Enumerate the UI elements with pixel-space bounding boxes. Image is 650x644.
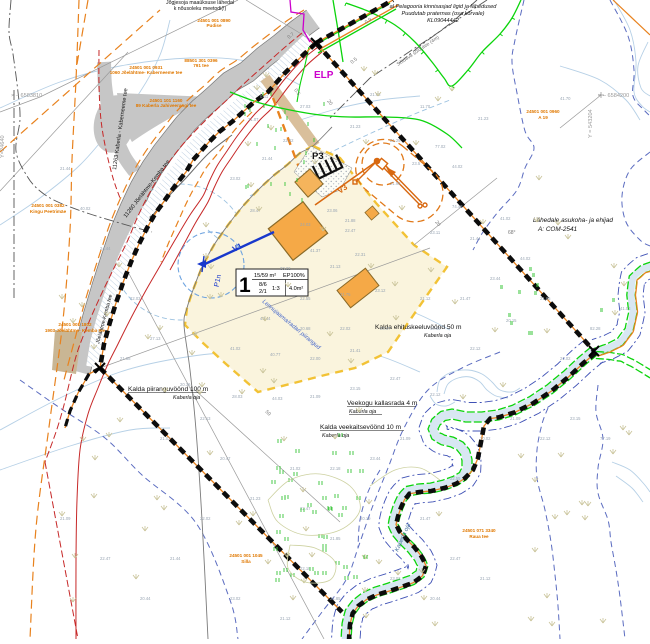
svg-text:20.02: 20.02 [480, 436, 491, 441]
svg-text:22.00: 22.00 [310, 356, 321, 361]
svg-text:21.02: 21.02 [290, 466, 301, 471]
svg-text:Puudutab praternas (osa kõrval: Puudutab praternas (osa kõrvale) [401, 11, 484, 17]
svg-text:11.70: 11.70 [420, 104, 431, 109]
svg-text:21.09: 21.09 [310, 394, 321, 399]
svg-text:22.47: 22.47 [390, 376, 401, 381]
svg-text:24501 001 0382: 24501 001 0382 [31, 203, 65, 208]
svg-text:23.44: 23.44 [370, 456, 381, 461]
svg-text:22.47: 22.47 [345, 228, 356, 233]
svg-text:20.44: 20.44 [430, 596, 441, 601]
svg-text:41.02: 41.02 [500, 216, 511, 221]
svg-text:23.12: 23.12 [375, 288, 386, 293]
svg-text:41.70: 41.70 [560, 96, 571, 101]
svg-text:21.02: 21.02 [160, 436, 171, 441]
svg-text:23.15: 23.15 [570, 416, 581, 421]
svg-text:Kaberla oja: Kaberla oja [424, 333, 451, 339]
svg-text:20.19: 20.19 [360, 516, 371, 521]
svg-text:15/59 m²: 15/59 m² [254, 273, 276, 279]
svg-text:20.36: 20.36 [180, 382, 191, 387]
svg-text:A: COM-2541: A: COM-2541 [537, 226, 578, 233]
svg-text:24501 001 1802: 24501 001 1802 [58, 322, 92, 327]
svg-text:21.88: 21.88 [345, 218, 356, 223]
svg-text:23.11: 23.11 [430, 230, 441, 235]
svg-text:23.37: 23.37 [380, 326, 391, 331]
svg-text:791 tee: 791 tee [193, 63, 209, 68]
svg-text:22.47: 22.47 [300, 506, 311, 511]
svg-text:41.03: 41.03 [620, 306, 631, 311]
svg-text:A 19: A 19 [538, 115, 548, 120]
svg-text:21.12: 21.12 [480, 576, 491, 581]
svg-text:22.18: 22.18 [300, 566, 311, 571]
svg-text:1060 Jõelähtme- Kaberneeme tee: 1060 Jõelähtme- Kaberneeme tee [110, 70, 183, 75]
svg-text:1903 Jõelähtme- Kemba tee: 1903 Jõelähtme- Kemba tee [45, 328, 106, 333]
svg-text:22.55: 22.55 [300, 296, 311, 301]
svg-text:21.23: 21.23 [478, 116, 489, 121]
svg-text:23.15: 23.15 [350, 386, 361, 391]
svg-text:KL09044442: KL09044442 [427, 18, 460, 24]
svg-text:21.09: 21.09 [510, 416, 521, 421]
svg-text:21.23: 21.23 [250, 496, 261, 501]
svg-text:21.44: 21.44 [262, 156, 273, 161]
svg-text:68°: 68° [508, 230, 516, 236]
svg-text:28.03: 28.03 [232, 394, 243, 399]
svg-text:23.44: 23.44 [490, 276, 501, 281]
svg-text:Silla: Silla [241, 559, 251, 564]
svg-text:22.47: 22.47 [450, 556, 461, 561]
svg-text:21.12: 21.12 [280, 616, 291, 621]
svg-text:24501 001 1045: 24501 001 1045 [229, 553, 263, 558]
svg-text:74.48: 74.48 [452, 204, 463, 209]
svg-text:20.68: 20.68 [300, 326, 311, 331]
svg-text:8/6: 8/6 [259, 282, 267, 288]
svg-text:77.19: 77.19 [600, 436, 611, 441]
svg-text:22.13: 22.13 [200, 416, 211, 421]
svg-text:40.02: 40.02 [80, 206, 91, 211]
svg-text:Raua tee: Raua tee [469, 534, 489, 539]
svg-text:21.41: 21.41 [350, 348, 361, 353]
svg-text:22.12: 22.12 [430, 392, 441, 397]
svg-text:21.85: 21.85 [330, 596, 341, 601]
svg-text:Kalda piiranguvöönd 100 m: Kalda piiranguvöönd 100 m [128, 386, 209, 393]
svg-text:21.13: 21.13 [330, 264, 341, 269]
svg-text:22.31: 22.31 [355, 252, 366, 257]
svg-text:22.02: 22.02 [200, 516, 211, 521]
svg-text:22.03: 22.03 [130, 296, 141, 301]
svg-text:44.03: 44.03 [272, 396, 283, 401]
svg-text:23.02: 23.02 [390, 576, 401, 581]
svg-text:21.09: 21.09 [60, 516, 71, 521]
svg-text:21.98: 21.98 [390, 181, 401, 186]
svg-text:Kalda veekaitsevöönd 10 m: Kalda veekaitsevöönd 10 m [320, 424, 402, 431]
svg-text:ELP: ELP [314, 70, 334, 81]
svg-text:23.06: 23.06 [327, 208, 338, 213]
svg-text:23.02: 23.02 [230, 596, 241, 601]
svg-text:× – 6583810: × – 6583810 [11, 93, 42, 99]
svg-text:Kaberla oja: Kaberla oja [349, 409, 376, 415]
svg-text:22.55: 22.55 [450, 476, 461, 481]
svg-text:21.75: 21.75 [340, 292, 351, 297]
svg-text:al Pelagooria kinnisasjad ligi: al Pelagooria kinnisasjad ligid ja lähed… [390, 4, 498, 10]
svg-text:27.13: 27.13 [150, 336, 161, 341]
svg-text:21.44: 21.44 [170, 556, 181, 561]
svg-text:× – 6584200: × – 6584200 [598, 93, 629, 99]
svg-text:22.12: 22.12 [540, 436, 551, 441]
svg-text:1: 1 [239, 274, 251, 297]
svg-text:89 Kaberla Jahiveerangi tee: 89 Kaberla Jahiveerangi tee [136, 103, 197, 108]
svg-text:27.03: 27.03 [300, 104, 311, 109]
svg-text:22.47: 22.47 [100, 556, 111, 561]
svg-text:EP100%: EP100% [283, 273, 305, 279]
svg-text:21.85: 21.85 [330, 536, 341, 541]
svg-text:21.44: 21.44 [470, 236, 481, 241]
svg-text:21.02: 21.02 [560, 356, 571, 361]
svg-text:k nõusoleku meetodi(!): k nõusoleku meetodi(!) [174, 6, 227, 12]
svg-text:Pudise: Pudise [206, 23, 222, 28]
svg-text:82.28: 82.28 [590, 326, 601, 331]
svg-text:21.47: 21.47 [460, 296, 471, 301]
svg-text:77.02: 77.02 [435, 144, 446, 149]
svg-text:2/1: 2/1 [259, 289, 267, 295]
svg-text:Veekogu kallasrada 4 m: Veekogu kallasrada 4 m [347, 400, 418, 407]
svg-text:Kingu Peetrimäe: Kingu Peetrimäe [30, 209, 67, 214]
svg-text:24501 001 0960: 24501 001 0960 [526, 109, 560, 114]
svg-text:41.02: 41.02 [230, 346, 241, 351]
svg-text:22.02: 22.02 [340, 326, 351, 331]
svg-text:1:3: 1:3 [272, 286, 280, 292]
svg-text:23.22: 23.22 [280, 266, 291, 271]
svg-text:Y = 543204: Y = 543204 [588, 109, 594, 138]
svg-text:21.12: 21.12 [420, 296, 431, 301]
svg-text:41.37: 41.37 [310, 248, 321, 253]
svg-text:21.88: 21.88 [120, 356, 131, 361]
svg-text:21.44: 21.44 [60, 166, 71, 171]
svg-text:21.29: 21.29 [390, 138, 401, 143]
svg-text:44.02: 44.02 [520, 256, 531, 261]
svg-text:22.02: 22.02 [283, 138, 294, 143]
svg-text:Y=24640: Y=24640 [0, 135, 6, 158]
svg-text:40.77: 40.77 [270, 352, 281, 357]
svg-text:0.41: 0.41 [260, 94, 269, 99]
svg-text:22.18: 22.18 [330, 466, 341, 471]
svg-text:24501 071 3340: 24501 071 3340 [462, 528, 496, 533]
svg-text:22.12: 22.12 [470, 346, 481, 351]
svg-text:23.5: 23.5 [412, 161, 421, 166]
svg-text:23.02: 23.02 [230, 176, 241, 181]
svg-text:24.44: 24.44 [100, 246, 111, 251]
svg-text:21.85: 21.85 [540, 296, 551, 301]
svg-text:20.47: 20.47 [220, 456, 231, 461]
svg-text:Kaberla oja: Kaberla oja [173, 395, 200, 401]
svg-text:21.07: 21.07 [248, 117, 259, 122]
svg-text:21.23: 21.23 [350, 124, 361, 129]
svg-text:44.02: 44.02 [452, 164, 463, 169]
svg-text:Lähedale asukoha- ja ehijad: Lähedale asukoha- ja ehijad [533, 217, 613, 224]
svg-text:40.55: 40.55 [430, 326, 441, 331]
svg-text:24.03: 24.03 [300, 222, 311, 227]
svg-text:21.47: 21.47 [420, 516, 431, 521]
svg-text:4.0m²: 4.0m² [289, 286, 303, 292]
svg-text:21.09: 21.09 [400, 436, 411, 441]
svg-text:20.44: 20.44 [140, 596, 151, 601]
